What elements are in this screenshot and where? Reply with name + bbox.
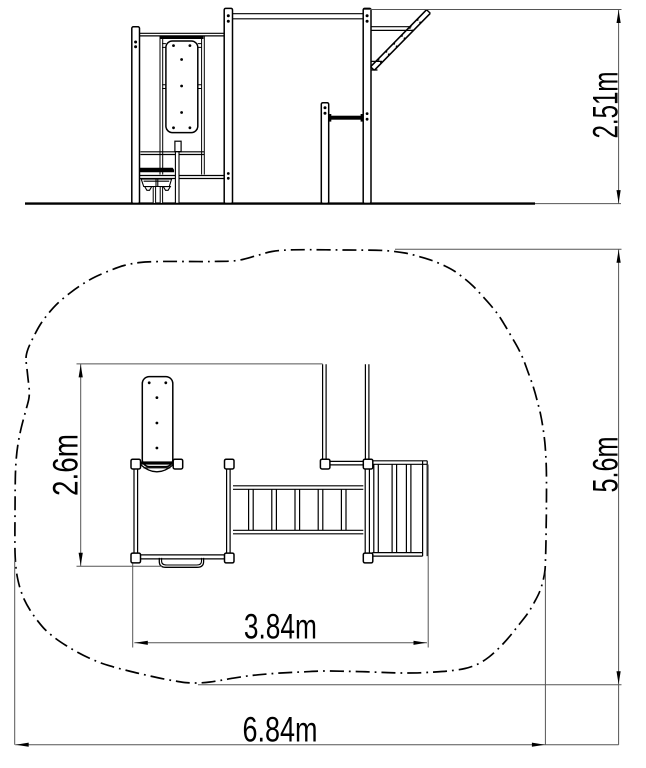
svg-text:2.51m: 2.51m [587, 72, 626, 139]
svg-text:5.6m: 5.6m [586, 437, 625, 493]
svg-text:2.6m: 2.6m [47, 434, 86, 496]
svg-text:3.84m: 3.84m [244, 608, 317, 647]
svg-text:6.84m: 6.84m [243, 710, 318, 749]
